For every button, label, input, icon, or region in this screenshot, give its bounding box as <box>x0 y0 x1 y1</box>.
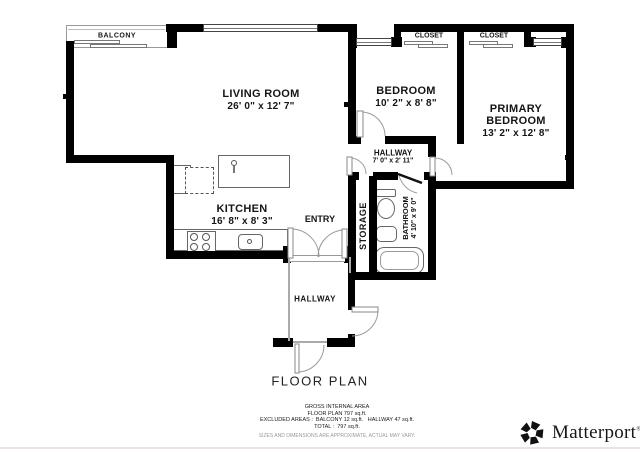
door-arc <box>435 158 452 175</box>
door-arc <box>291 229 319 257</box>
matterport-pinwheel-icon <box>518 420 546 446</box>
door-arc <box>297 345 324 372</box>
registered-mark: ® <box>636 427 640 433</box>
door-arc <box>361 112 385 136</box>
door-leaf <box>430 157 435 176</box>
storage-label: STORAGE <box>358 202 368 250</box>
primary-bedroom-dims: 13' 2" x 12' 8" <box>474 128 558 139</box>
door-leaf <box>347 157 352 175</box>
hallway-upper-dims: 7' 0" x 2' 11" <box>373 158 414 166</box>
plan-title: FLOOR PLAN <box>271 374 368 389</box>
living-room-label: LIVING ROOM 26' 0" x 12' 7" <box>222 88 299 112</box>
matterport-wordmark: Matterport® <box>552 422 640 444</box>
kitchen-label: KITCHEN 16' 8" x 8' 3" <box>211 203 273 227</box>
floor-plan-area-line: FLOOR PLAN 797 sq.ft. <box>187 411 487 418</box>
kitchen-name: KITCHEN <box>211 203 273 215</box>
floor-plan-page: BALCONY LIVING ROOM 26' 0" x 12' 7" KITC… <box>0 0 640 452</box>
bathroom-dims: 4' 10" x 9' 0" <box>410 196 418 240</box>
bathroom-label: BATHROOM 4' 10" x 9' 0" <box>402 196 419 240</box>
gross-internal-area-title: GROSS INTERNAL AREA <box>187 404 487 411</box>
primary-bedroom-label: PRIMARY BEDROOM 13' 2" x 12' 8" <box>474 103 558 139</box>
hallway-upper-label: HALLWAY 7' 0" x 2' 11" <box>373 149 414 166</box>
kitchen-dims: 16' 8" x 8' 3" <box>211 216 273 227</box>
excluded-areas-line: EXCLUDED AREAS : BALCONY 12 sq.ft. HALLW… <box>187 417 487 424</box>
door-leaf <box>342 229 347 258</box>
bedroom-label: BEDROOM 10' 2" x 8' 8" <box>375 85 437 109</box>
living-room-dims: 26' 0" x 12' 7" <box>222 101 299 112</box>
closet-left-label: CLOSET <box>415 33 443 40</box>
entry-label: ENTRY <box>305 214 335 224</box>
living-room-name: LIVING ROOM <box>222 88 299 100</box>
disclaimer-text: SIZES AND DIMENSIONS ARE APPROXIMATE, AC… <box>187 433 487 439</box>
door-arc <box>352 310 378 336</box>
door-leaf <box>288 228 293 258</box>
hallway-upper-name: HALLWAY <box>373 149 414 158</box>
balcony-label: BALCONY <box>98 33 136 40</box>
primary-bedroom-name: PRIMARY BEDROOM <box>474 103 558 127</box>
door-leaf <box>352 307 378 312</box>
hallway-lower-label: HALLWAY <box>294 295 336 304</box>
closet-right-label: CLOSET <box>480 33 508 40</box>
total-area-line: TOTAL : 797 sq.ft. <box>187 424 487 431</box>
pinwheel-petal <box>531 421 540 430</box>
bedroom-name: BEDROOM <box>375 85 437 97</box>
pinwheel-petal <box>520 421 532 433</box>
matterport-logo: Matterport® <box>518 420 640 446</box>
door-arc <box>318 230 345 257</box>
bedroom-dims: 10' 2" x 8' 8" <box>375 98 437 109</box>
pinwheel-petal <box>518 430 531 443</box>
door-leaf <box>295 344 299 373</box>
door-leaf <box>357 111 363 137</box>
area-summary: GROSS INTERNAL AREA FLOOR PLAN 797 sq.ft… <box>187 404 487 439</box>
bathroom-name: BATHROOM <box>402 196 411 240</box>
